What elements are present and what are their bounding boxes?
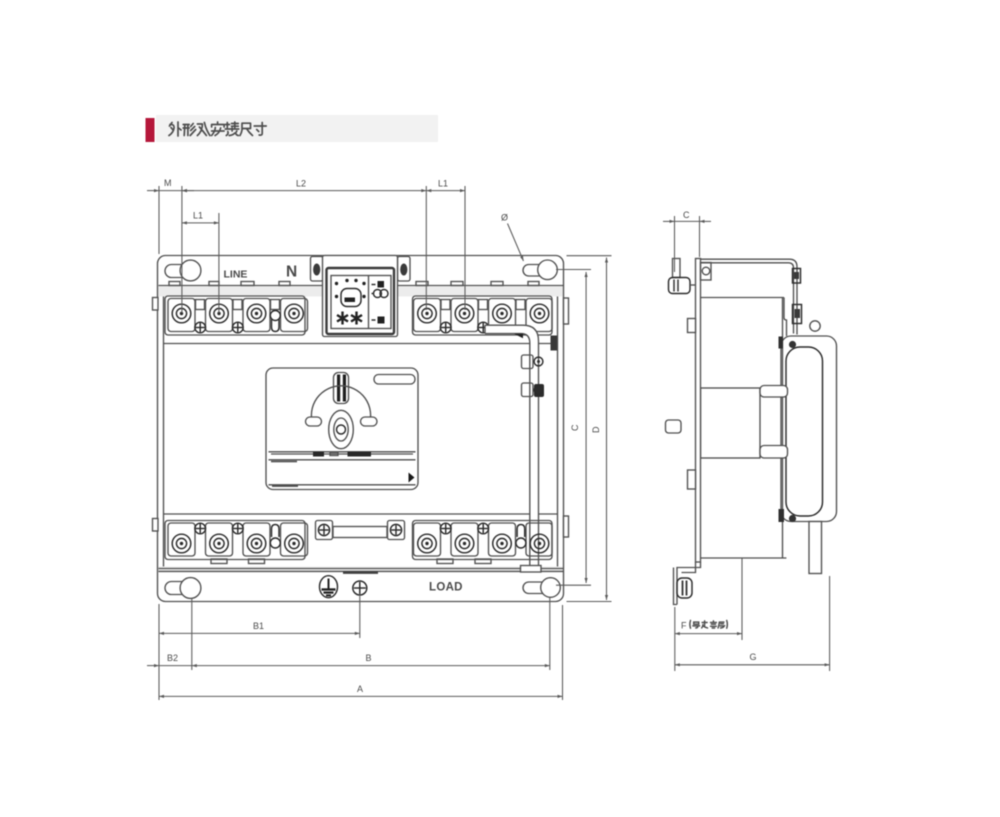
svg-text:N: N	[286, 264, 297, 281]
svg-text:G: G	[750, 652, 757, 662]
svg-text:L1: L1	[193, 211, 203, 221]
svg-text:Ø: Ø	[501, 213, 508, 223]
svg-text:M: M	[164, 178, 172, 188]
svg-text:LOAD: LOAD	[429, 582, 463, 594]
svg-text:C: C	[570, 424, 580, 431]
svg-text:C: C	[683, 210, 690, 220]
svg-text:L1: L1	[438, 179, 448, 189]
svg-text:B1: B1	[253, 621, 264, 631]
svg-text:LINE: LINE	[224, 269, 248, 281]
svg-text:B: B	[366, 653, 372, 663]
svg-text:L2: L2	[296, 179, 306, 189]
svg-text:B2: B2	[167, 653, 178, 663]
svg-text:F: F	[681, 621, 687, 631]
svg-text:A: A	[357, 684, 363, 694]
svg-text:D: D	[591, 426, 601, 433]
